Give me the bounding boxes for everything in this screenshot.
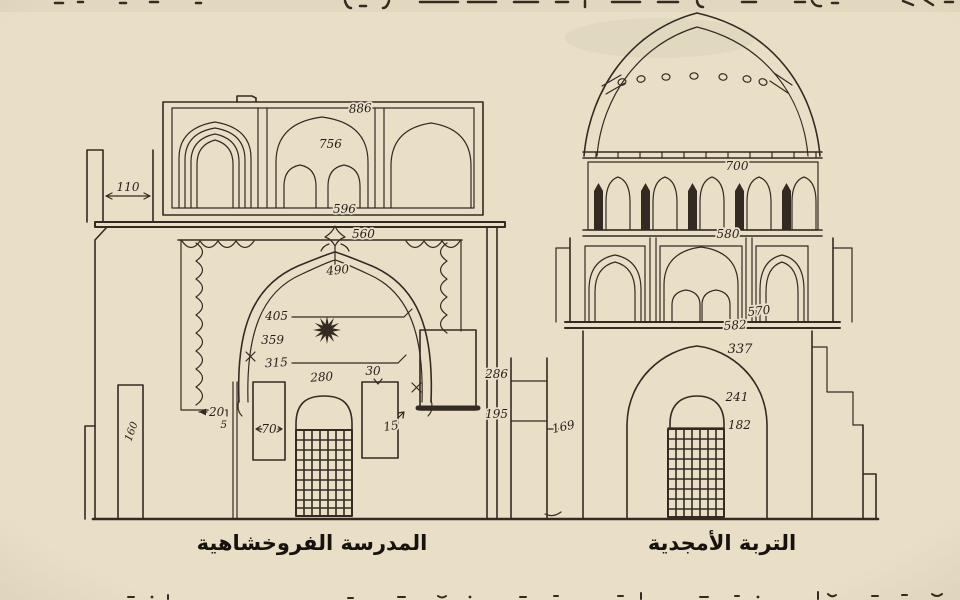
scanned-drawing-page: 110 886 756 596 160 [0,0,960,600]
architectural-drawing: 110 886 756 596 160 [0,0,960,600]
vignette-overlay [0,0,960,600]
